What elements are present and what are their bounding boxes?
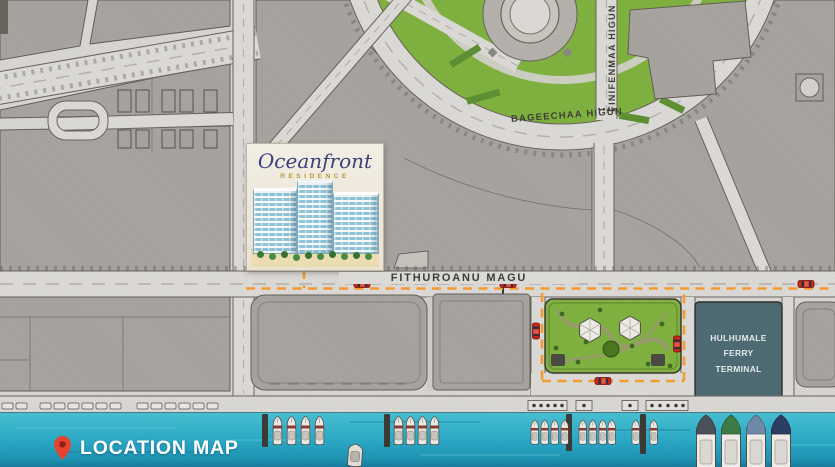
ferry-boat — [697, 415, 716, 467]
ferry-boat — [722, 415, 741, 467]
waterfront-promenade — [0, 396, 835, 413]
ferry-boat — [772, 415, 791, 467]
ferry-terminal-label: HULHUMALE FERRY TERMINAL — [696, 331, 781, 377]
ferry-boat — [747, 415, 766, 467]
neighborhood-park — [545, 299, 681, 373]
oceanfront-logo-card: Oceanfront RESIDENCE — [246, 143, 384, 271]
road-label-finifenmaa-higun: FINIFENMAA HIGUN — [607, 0, 617, 124]
building-rendering — [251, 181, 379, 267]
ferry-terminal-label-line1: HULHUMALE FERRY — [696, 331, 781, 362]
building-tower-right — [333, 192, 379, 254]
page-title: LOCATION MAP — [80, 437, 239, 460]
footer: LOCATION MAP — [54, 436, 239, 460]
logo-name: Oceanfront — [247, 149, 383, 173]
logo-subtitle: RESIDENCE — [247, 173, 383, 180]
road-label-fithuroanu-magu: FITHUROANU MAGU — [339, 272, 579, 284]
ferry-terminal-label-line2: TERMINAL — [696, 362, 781, 377]
building-tower-center — [297, 180, 333, 254]
building-landscaping — [257, 251, 264, 258]
map-base — [0, 0, 835, 467]
location-pin-icon — [54, 436, 71, 460]
location-map[interactable]: Oceanfront RESIDENCE FITHUROANU MAGU BAG… — [0, 0, 835, 467]
building-tower-left — [253, 188, 297, 254]
moving-boat — [347, 444, 363, 467]
